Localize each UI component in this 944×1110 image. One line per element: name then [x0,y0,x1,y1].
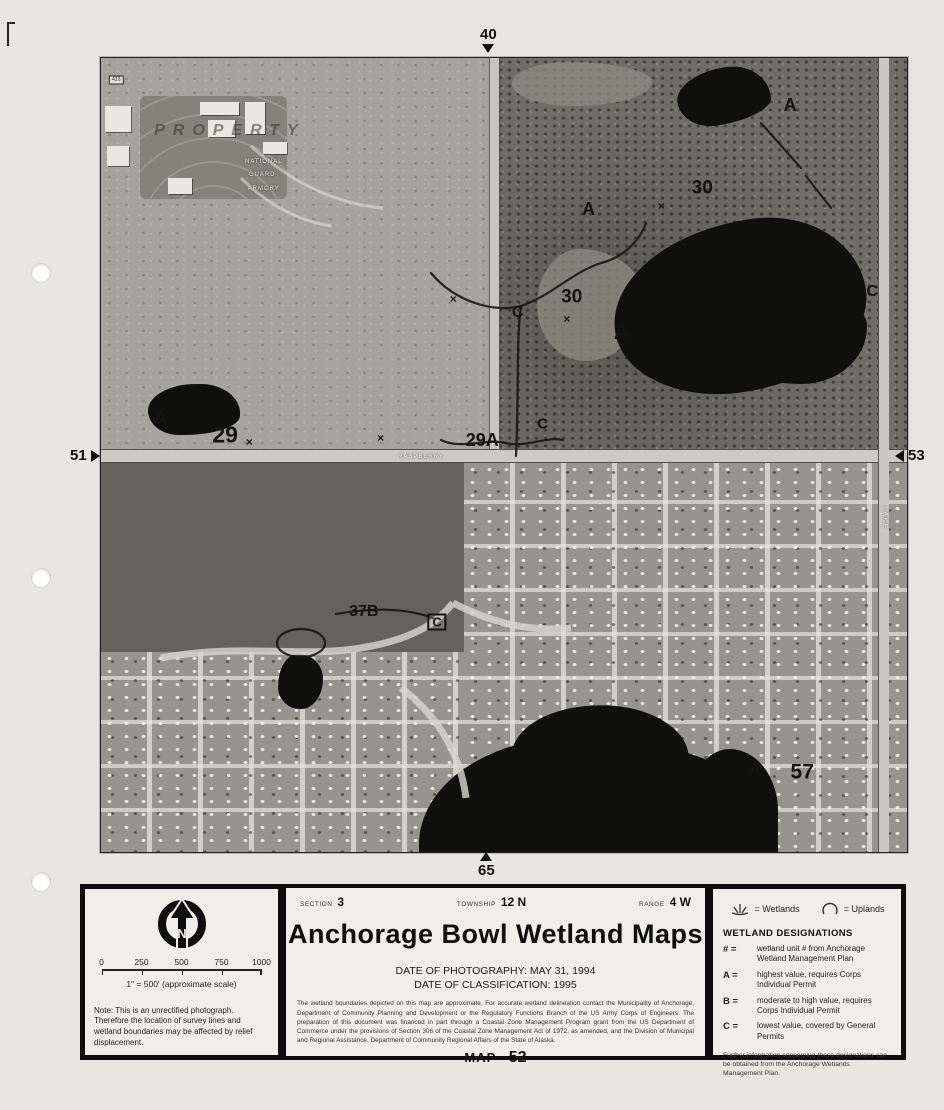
edge-number: 40 [480,26,497,43]
designation-text: moderate to high value, requires Corps I… [757,996,882,1017]
designation-text: lowest value, covered by General Permits [757,1021,882,1042]
map-title: Anchorage Bowl Wetland Maps [286,919,705,950]
scale-tick-labels: 02505007501000 [102,957,262,967]
photo-annotation: C [537,417,548,432]
legend-symbols-row: = Wetlands = Uplands [713,889,901,916]
trs-row: SECTION 3 TOWNSHIP 12 N RANGE 4 W [286,888,705,909]
range-label: RANGE [639,901,665,908]
photo-annotation: A [614,321,630,343]
designations-title: WETLAND DESIGNATIONS [713,916,901,939]
dates-block: DATE OF PHOTOGRAPHY: MAY 31, 1994 DATE O… [286,964,705,992]
scale-bar: 02505007501000 1" = 500' (approximate sc… [102,957,262,989]
photo-annotation: NATIONAL [245,159,283,165]
photo-annotation: A [784,96,797,114]
edge-number: 53 [908,447,925,464]
annotation-layer: 413 PROPERTY NATIONAL GUARD ARMORY A 29 … [101,58,907,852]
township-value: 12 N [501,895,526,909]
scale-tick-label: 250 [130,957,154,967]
photo-annotation: 30 [561,287,582,306]
legend-cell: = Wetlands = Uplands WETLAND DESIGNATION… [708,884,906,1060]
arrow-down-icon [482,44,494,53]
date-of-classification: DATE OF CLASSIFICATION: 1995 [286,978,705,992]
legend-footer: Further information concerning these des… [713,1042,901,1079]
map-number-label: MAP [464,1050,496,1065]
wetlands-icon [730,901,750,916]
edge-marker-right: 53 [895,447,925,464]
photo-annotation: LAKE [881,506,887,529]
scale-line [102,969,262,971]
designation-symbol: # = [723,944,757,965]
hole-punch [32,873,50,891]
uplands-legend-item: = Uplands [821,902,885,916]
title-cell: SECTION 3 TOWNSHIP 12 N RANGE 4 W Anchor… [282,884,709,1060]
photo-annotation: 29 [212,424,238,447]
scale-cell: N 02505007501000 1" = 500' (approximate … [80,884,283,1060]
township-field: TOWNSHIP 12 N [457,895,526,909]
photo-annotation: 30 [692,179,713,198]
section-field: SECTION 3 [300,895,344,909]
designations-list: # = wetland unit # from Anchorage Wetlan… [713,939,901,1042]
scale-tick-label: 0 [90,957,114,967]
edge-marker-left: 51 [70,447,100,464]
scale-caption: 1" = 500' (approximate scale) [102,979,262,989]
photo-annotation: × [246,436,253,448]
map-number: MAP 52 [286,1049,705,1067]
scan-corner-mark [7,22,9,46]
photo-annotation: × [377,432,384,444]
edge-number: 65 [478,862,495,879]
photo-annotation: GUARD [249,172,276,178]
range-value: 4 W [670,895,691,909]
photo-annotation: C [427,613,446,630]
photo-annotation: A [582,200,595,218]
disclaimer-text: The wetland boundaries depicted on this … [286,992,705,1045]
map-number-value: 52 [509,1049,527,1066]
aerial-photo: 413 PROPERTY NATIONAL GUARD ARMORY A 29 … [100,57,908,853]
designation-symbol: C = [723,1021,757,1042]
north-arrow-icon: N [153,897,211,955]
edge-number: 51 [70,447,87,464]
scale-tick-label: 500 [170,957,194,967]
designation-row: # = wetland unit # from Anchorage Wetlan… [713,939,901,965]
photo-annotation: A [748,761,761,779]
designation-row: C = lowest value, covered by General Per… [713,1016,901,1042]
designation-text: highest value, requires Corps Individual… [757,970,882,991]
section-value: 3 [337,895,344,909]
photo-annotation: PROPERTY [154,123,306,139]
arrow-left-icon [895,450,904,462]
arrow-right-icon [91,450,100,462]
photo-annotation: C [512,305,524,321]
photo-annotation: C [867,284,879,300]
svg-text:N: N [177,926,186,941]
date-of-photography: DATE OF PHOTOGRAPHY: MAY 31, 1994 [286,964,705,978]
section-label: SECTION [300,901,332,908]
scanned-map-page: 413 PROPERTY NATIONAL GUARD ARMORY A 29 … [0,0,944,1110]
edge-marker-top: 40 [480,26,497,53]
wetlands-legend-item: = Wetlands [730,901,800,916]
info-panel: N 02505007501000 1" = 500' (approximate … [80,884,906,1060]
designation-row: B = moderate to high value, requires Cor… [713,991,901,1017]
photo-annotation: RASPBERRY [398,454,444,460]
designation-text: wetland unit # from Anchorage Wetland Ma… [757,944,882,965]
photo-annotation: 413 [109,76,123,85]
scale-tick-label: 1000 [250,957,274,967]
scale-tick-label: 750 [210,957,234,967]
unrectified-note: Note: This is an unrectified photograph.… [85,1006,278,1049]
uplands-label: = Uplands [844,904,885,914]
arrow-up-icon [480,852,492,861]
photo-annotation: 37B [349,604,378,620]
photo-annotation: A [154,408,168,427]
wetlands-label: = Wetlands [755,904,800,914]
township-label: TOWNSHIP [457,901,496,908]
photo-annotation: × [563,313,570,325]
photo-annotation: × [450,293,457,305]
hole-punch [32,569,50,587]
photo-annotation: 57 [791,761,814,782]
hole-punch [32,264,50,282]
photo-annotation: 29A [466,431,499,449]
designation-row: A = highest value, requires Corps Indivi… [713,965,901,991]
designation-symbol: A = [723,970,757,991]
photo-annotation: × [658,200,665,212]
photo-annotation: ARMORY [248,186,280,192]
range-field: RANGE 4 W [639,895,691,909]
designation-symbol: B = [723,996,757,1017]
edge-marker-bottom: 65 [478,852,495,879]
uplands-icon [821,902,839,916]
